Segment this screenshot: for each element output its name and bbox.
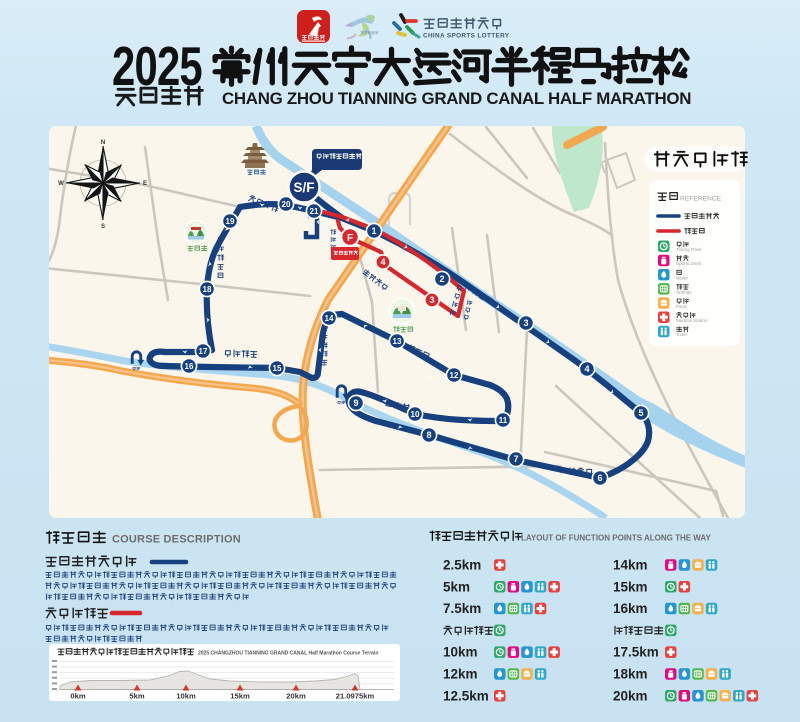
svg-text:10km: 10km [443, 645, 478, 660]
svg-text:6: 6 [597, 473, 602, 483]
svg-text:2025 CHANGZHOU TIANNING GRAND: 2025 CHANGZHOU TIANNING GRAND CANAL Half… [198, 651, 378, 657]
svg-text:Sports Drink: Sports Drink [676, 261, 702, 266]
svg-text:10: 10 [411, 410, 420, 419]
svg-text:16km: 16km [613, 601, 648, 616]
svg-text:21: 21 [310, 207, 319, 216]
svg-text:W: W [58, 181, 64, 187]
svg-text:Medical Station: Medical Station [676, 318, 708, 323]
svg-text:1: 1 [371, 226, 376, 236]
svg-text:3: 3 [523, 318, 528, 328]
svg-text:Sponge: Sponge [676, 290, 692, 295]
svg-text:2.5km: 2.5km [443, 558, 481, 573]
svg-text:11: 11 [499, 416, 508, 425]
svg-text:12.5km: 12.5km [443, 688, 489, 703]
svg-text:REFERENCE: REFERENCE [680, 196, 721, 203]
svg-text:16: 16 [185, 362, 194, 371]
svg-text:Timing Point: Timing Point [676, 247, 702, 252]
svg-text:8: 8 [426, 430, 431, 440]
svg-text:14km: 14km [613, 558, 648, 573]
svg-text:10km: 10km [176, 692, 196, 701]
svg-text:15km: 15km [613, 579, 648, 594]
svg-text:S/F: S/F [293, 180, 314, 195]
svg-text:5km: 5km [129, 692, 144, 701]
svg-text:E: E [143, 181, 147, 187]
svg-text:20km: 20km [613, 688, 648, 703]
svg-text:7: 7 [513, 454, 518, 464]
svg-text:21.0975km: 21.0975km [336, 692, 375, 701]
svg-text:13: 13 [393, 337, 402, 346]
svg-text:3: 3 [429, 295, 434, 305]
svg-text:CHANG ZHOU TIANNING GRAND CANA: CHANG ZHOU TIANNING GRAND CANAL HALF MAR… [222, 89, 691, 108]
svg-text:9: 9 [353, 398, 358, 408]
svg-text:N: N [101, 140, 105, 146]
svg-text:15: 15 [273, 364, 282, 373]
svg-text:0km: 0km [70, 692, 85, 701]
svg-text:12km: 12km [443, 667, 478, 682]
svg-text:15km: 15km [230, 692, 250, 701]
svg-text:F: F [347, 233, 353, 244]
svg-text:4: 4 [380, 257, 385, 267]
svg-text:18: 18 [203, 285, 212, 294]
svg-text:Water: Water [676, 275, 689, 280]
svg-text:COURSE DESCRIPTION: COURSE DESCRIPTION [112, 534, 241, 546]
svg-text:14: 14 [325, 314, 334, 323]
svg-text:S: S [101, 224, 105, 230]
svg-text:7.5km: 7.5km [443, 601, 481, 616]
svg-text:19: 19 [226, 217, 235, 226]
svg-text:5: 5 [638, 408, 643, 418]
svg-text:4: 4 [584, 364, 589, 374]
svg-text:17: 17 [199, 347, 208, 356]
svg-text:LAYOUT OF FUNCTION POINTS ALON: LAYOUT OF FUNCTION POINTS ALONG THE WAY [521, 534, 711, 543]
svg-text:18km: 18km [613, 667, 648, 682]
svg-text:Toilet: Toilet [676, 332, 687, 337]
svg-text:17.5km: 17.5km [613, 645, 659, 660]
svg-text:12: 12 [450, 371, 459, 380]
svg-text:2: 2 [439, 274, 444, 284]
svg-text:CHINA SPORTS LOTTERY: CHINA SPORTS LOTTERY [423, 33, 510, 40]
svg-text:Food: Food [676, 304, 687, 309]
svg-text:5km: 5km [443, 579, 470, 594]
svg-text:20km: 20km [286, 692, 306, 701]
svg-text:20: 20 [282, 200, 291, 209]
